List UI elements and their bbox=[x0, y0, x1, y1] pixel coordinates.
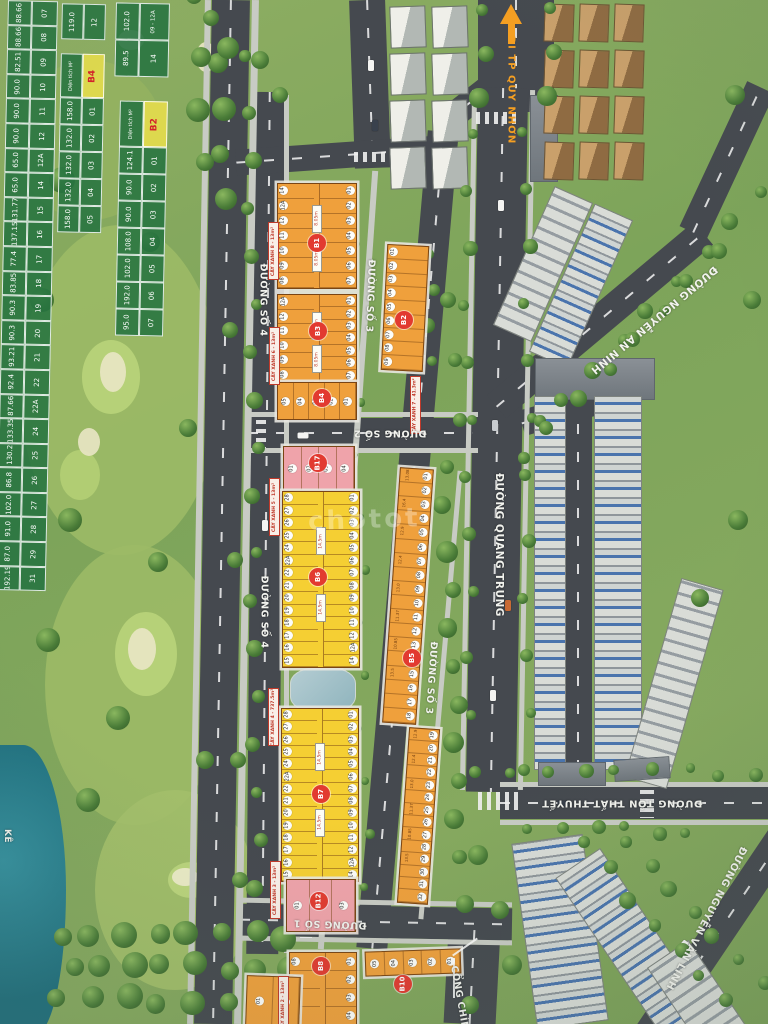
lot-number: 13 bbox=[412, 642, 417, 649]
lot-number: 08 bbox=[350, 797, 355, 803]
lot-cell: 05 bbox=[366, 952, 386, 976]
lot-cell: 05 bbox=[323, 758, 358, 770]
block-badge-label: B3 bbox=[314, 326, 322, 336]
lot-number-chip: 12A bbox=[279, 297, 288, 306]
lot-number-chip: 03 bbox=[408, 958, 417, 967]
tree bbox=[505, 768, 515, 778]
lot-number-chip: 18 bbox=[405, 711, 415, 721]
lot-number: 26 bbox=[424, 819, 429, 826]
lot-number-chip: 11 bbox=[349, 618, 358, 627]
alley-dimension: 8.05m bbox=[315, 212, 320, 226]
legend-cell-text: 11 bbox=[39, 107, 46, 116]
legend-row: 102.005 bbox=[116, 254, 165, 282]
lot-cell: 12A bbox=[323, 856, 358, 868]
tree bbox=[755, 186, 768, 199]
legend-cell: 86.8 bbox=[0, 467, 22, 492]
legend-row: 133.3524 bbox=[0, 418, 49, 444]
tree bbox=[357, 398, 366, 407]
lot-number: 11 bbox=[281, 232, 286, 238]
legend-cell: 130.2 bbox=[0, 443, 23, 468]
lot-dimension: 13.0 bbox=[409, 779, 415, 788]
legend-cell-text: 77.4 bbox=[11, 251, 18, 267]
lot-number-chip: 06 bbox=[346, 358, 355, 367]
lot-number-chip: 01 bbox=[343, 397, 352, 406]
lot-number-chip: 31 bbox=[418, 879, 428, 889]
lot-number-chip: 10 bbox=[349, 606, 358, 615]
car bbox=[372, 120, 378, 131]
lot-number: 16 bbox=[286, 645, 291, 651]
legend-cell: 22 bbox=[24, 369, 51, 394]
legend-cell: 119.0 bbox=[61, 3, 84, 39]
detached-house bbox=[389, 52, 426, 95]
lot-number: 11 bbox=[350, 834, 355, 840]
legend-cell: 91.0 bbox=[0, 517, 21, 542]
lot-number: 09 bbox=[351, 595, 356, 601]
legend-table-mini-1: 119.012 bbox=[61, 3, 106, 40]
legend-table-b4: Diện tích M²B4158.001132.002132.003132.0… bbox=[57, 53, 105, 233]
lot-number: 02 bbox=[390, 262, 395, 269]
lot-number: 04 bbox=[298, 398, 303, 404]
lot-cell: 16 bbox=[283, 642, 318, 655]
legend-cell: 90.0 bbox=[5, 123, 30, 148]
rowhouse-strip bbox=[534, 396, 566, 770]
legend-row: 90.320 bbox=[1, 320, 52, 346]
lot-number-chip: 05 bbox=[281, 397, 290, 406]
tree bbox=[88, 955, 110, 977]
legend-cell: B4 bbox=[82, 54, 105, 98]
legend-cell: 83.85 bbox=[2, 271, 27, 296]
legend-cell-text: 102.0 bbox=[124, 11, 131, 31]
lot-cell: 12 bbox=[324, 630, 359, 643]
tree bbox=[77, 925, 99, 947]
green-space-label: CÂY XANH 7 - 41.3m² bbox=[413, 378, 418, 432]
tree bbox=[522, 824, 532, 834]
lot-number: 05 bbox=[350, 761, 355, 767]
legend-cell: 06 bbox=[140, 282, 165, 309]
lot-number: 12A bbox=[351, 643, 356, 653]
tree bbox=[212, 97, 236, 121]
lot-number-chip: 04 bbox=[296, 397, 305, 406]
legend-cell-text: 31 bbox=[29, 574, 36, 583]
detached-house bbox=[613, 95, 644, 134]
rowhouse-strip bbox=[594, 396, 642, 770]
tree bbox=[47, 989, 65, 1007]
legend-cell: 22A bbox=[23, 394, 50, 419]
lot-number-chip: 15 bbox=[283, 870, 292, 879]
lot-number-chip: 20 bbox=[284, 593, 293, 602]
lot-number: 20 bbox=[285, 810, 290, 816]
legend-cell-text: 90.0 bbox=[14, 103, 21, 119]
lot-number-chip: 03 bbox=[346, 993, 355, 1002]
legend-cell: 87.66 bbox=[0, 394, 24, 419]
tree bbox=[148, 552, 168, 572]
lot-number: 03 bbox=[389, 276, 394, 283]
lot-number: 12 bbox=[281, 313, 286, 319]
lot-number: 19 bbox=[430, 732, 435, 739]
legend-cell: 01 bbox=[142, 147, 167, 174]
alley-dimension: 14.5m bbox=[318, 750, 323, 764]
lot-number-chip: 01 bbox=[422, 472, 432, 482]
legend-cell: 21 bbox=[24, 345, 51, 370]
car bbox=[298, 433, 309, 439]
lot-number-chip: 14 bbox=[348, 870, 357, 879]
lot-number-chip: 02 bbox=[388, 261, 397, 270]
detached-house bbox=[578, 3, 609, 42]
lot-cell: 24 bbox=[282, 758, 317, 770]
lot-number-chip: 18 bbox=[284, 618, 293, 627]
lot-number: 22A bbox=[286, 555, 291, 565]
detached-house bbox=[578, 95, 609, 134]
lot-cell: 09 bbox=[278, 258, 314, 273]
detached-house bbox=[389, 5, 426, 48]
block-badge-b5: B5 bbox=[403, 649, 421, 667]
block-badge-b2: B2 bbox=[395, 311, 413, 329]
lot-cell: 01 bbox=[320, 184, 356, 199]
lot-number-chip: 20 bbox=[427, 743, 437, 753]
legend-cell: 88.66 bbox=[7, 0, 32, 25]
lot-number-chip: 06 bbox=[346, 261, 355, 270]
tree bbox=[518, 298, 529, 309]
lot-number-chip: 11 bbox=[412, 613, 422, 623]
lot-number-chip: 26 bbox=[422, 817, 432, 827]
detached-house bbox=[431, 52, 468, 95]
legend-cell: 124.1 bbox=[118, 147, 143, 174]
legend-row: 90.010 bbox=[6, 74, 57, 100]
detached-house bbox=[578, 141, 609, 180]
tree bbox=[463, 241, 477, 255]
lot-number-chip: 01 bbox=[389, 247, 398, 256]
lot-cell: 22A bbox=[282, 770, 317, 782]
legend-cell-text: 83.85 bbox=[10, 273, 17, 293]
tree bbox=[758, 976, 768, 990]
lot-number-chip: 07 bbox=[346, 276, 355, 285]
lot-number: 24 bbox=[285, 761, 290, 767]
legend-cell-text: 12 bbox=[39, 132, 46, 141]
lot-number-chip: 05 bbox=[349, 543, 358, 552]
lot-number: 06 bbox=[419, 544, 424, 551]
legend-row: 90.002 bbox=[118, 174, 167, 202]
lot-number-chip: 26 bbox=[283, 735, 292, 744]
legend-cell: 158.0 bbox=[57, 205, 80, 232]
legend-cell-text: 12 bbox=[91, 17, 98, 26]
lot-number: 16 bbox=[409, 684, 414, 691]
lot-number: 04 bbox=[421, 515, 426, 522]
lot-number: 10 bbox=[281, 342, 286, 348]
legend-row: 95.007 bbox=[115, 308, 164, 336]
lot-number: 02 bbox=[348, 976, 353, 982]
legend-cell-text: 137.15 bbox=[11, 222, 19, 247]
tree bbox=[502, 955, 522, 975]
lot-dimension: 13.5 bbox=[404, 854, 410, 863]
lot-number-chip: 05 bbox=[346, 346, 355, 355]
legend-cell: 14 bbox=[138, 40, 169, 78]
lot-cell: 24 bbox=[283, 542, 318, 555]
tree bbox=[557, 822, 569, 834]
lot-number-chip: 07 bbox=[384, 330, 393, 339]
lot-number: 01 bbox=[391, 248, 396, 255]
lot-number: 08 bbox=[281, 277, 286, 283]
lot-number-chip: 02 bbox=[346, 309, 355, 318]
lot-number: 30 bbox=[421, 868, 426, 875]
legend-cell-text: 87.0 bbox=[5, 546, 12, 562]
tree bbox=[217, 37, 239, 59]
lot-column: 01020304050607 bbox=[319, 295, 356, 382]
tree bbox=[66, 958, 84, 976]
legend-cell: 29 bbox=[20, 542, 47, 567]
block-badge-b17: B17 bbox=[309, 454, 327, 472]
lot-number: 25 bbox=[285, 748, 290, 754]
lot-number: 01 bbox=[350, 711, 355, 717]
legend-row: 90.003 bbox=[117, 201, 166, 229]
legend-cell: 05 bbox=[140, 255, 165, 282]
tree bbox=[440, 460, 454, 474]
sidewalk bbox=[500, 820, 768, 825]
lot-number-chip: 16 bbox=[283, 858, 292, 867]
legend-cell: 09 bbox=[30, 50, 57, 75]
tree bbox=[456, 895, 474, 913]
detached-house bbox=[613, 141, 644, 180]
lot-number-chip: 09 bbox=[383, 357, 392, 366]
alley-dimension: 14.5m bbox=[318, 816, 323, 830]
legend-row: 124.101 bbox=[118, 147, 167, 175]
lot-number: 27 bbox=[286, 507, 291, 513]
legend-cell: 65.0 bbox=[4, 148, 29, 173]
lot-number: 04 bbox=[348, 335, 353, 341]
lot-number-chip: 04 bbox=[346, 1011, 355, 1020]
lot-cell: 15 bbox=[283, 655, 318, 668]
lot-number-chip: 10 bbox=[348, 821, 357, 830]
tree bbox=[468, 129, 478, 139]
lot-number-chip: 08 bbox=[291, 957, 300, 966]
legend-row: 89.514 bbox=[114, 39, 169, 77]
alley-dimension: 8.05m bbox=[315, 352, 320, 366]
lot-block-b2: 010203040506070809 bbox=[381, 244, 430, 372]
legend-cell: 19 bbox=[25, 296, 52, 321]
site-masterplan-photo: ĐI TP QUY NHƠN chotot 1412A1211100908010… bbox=[0, 0, 768, 1024]
tree bbox=[183, 951, 207, 975]
tree bbox=[76, 788, 100, 812]
legend-cell-text: 133.35 bbox=[7, 418, 15, 443]
alley-dimension-strip: 14.5m bbox=[316, 594, 326, 622]
tree bbox=[58, 508, 82, 532]
tree bbox=[446, 659, 460, 673]
lot-cell: 19 bbox=[283, 605, 318, 618]
tree bbox=[173, 921, 197, 945]
legend-cell-text: 88.66 bbox=[16, 3, 23, 23]
lot-cell: 04 bbox=[337, 447, 355, 490]
lot-cell: 02 bbox=[326, 971, 356, 989]
lot-number: 03 bbox=[348, 322, 353, 328]
lot-dimension: 13.08 bbox=[404, 469, 410, 481]
lot-cell: 10 bbox=[323, 820, 358, 832]
lot-number: 26 bbox=[285, 736, 290, 742]
tree bbox=[244, 488, 259, 503]
green-space-strip: CÂY XANH 3 - 13m² bbox=[270, 861, 281, 919]
lot-cell: 26 bbox=[282, 734, 317, 746]
tree bbox=[570, 390, 587, 407]
golf-bunker bbox=[128, 628, 156, 670]
lot-number: 05 bbox=[348, 247, 353, 253]
lot-number-chip: 25 bbox=[423, 805, 433, 815]
lot-number: 11 bbox=[414, 614, 419, 621]
lot-number: 24 bbox=[286, 545, 291, 551]
legend-cell: 26 bbox=[22, 468, 49, 493]
legend-cell: 133.35 bbox=[0, 418, 23, 443]
detached-house bbox=[578, 49, 609, 88]
lot-number-chip: 12 bbox=[348, 845, 357, 854]
legend-cell-text: 06 bbox=[148, 291, 155, 300]
legend-cell-text: 12A bbox=[38, 154, 45, 168]
lot-number: 01 bbox=[447, 958, 452, 965]
lot-cell: 05 bbox=[324, 542, 359, 555]
tree bbox=[428, 284, 440, 296]
tree bbox=[733, 954, 744, 965]
lot-number: 04 bbox=[350, 748, 355, 754]
lot-cell: 18 bbox=[282, 832, 317, 844]
tree bbox=[149, 954, 169, 974]
lot-cell: 01 bbox=[326, 953, 356, 971]
lot-number: 05 bbox=[372, 961, 377, 968]
tree bbox=[579, 764, 593, 778]
tree bbox=[578, 836, 589, 847]
legend-cell: 89.5 bbox=[114, 39, 139, 76]
legend-cell-text: 108.0 bbox=[125, 231, 132, 251]
lot-cell: 14 bbox=[324, 655, 359, 668]
legend-cell-text: 132.0 bbox=[65, 182, 72, 202]
legend-table-b2: Diện tích M²B2124.10190.00290.003108.004… bbox=[115, 101, 168, 337]
lot-number: 10 bbox=[281, 247, 286, 253]
tree bbox=[106, 706, 130, 730]
tree bbox=[232, 872, 248, 888]
lot-number-chip: 09 bbox=[279, 355, 288, 364]
lot-cell: 20 bbox=[283, 592, 318, 605]
lot-number-chip: 01 bbox=[346, 186, 355, 195]
legend-cell-text: 16 bbox=[36, 230, 43, 239]
lot-cell: 05 bbox=[278, 383, 294, 419]
tree bbox=[448, 353, 462, 367]
crosswalk bbox=[354, 152, 388, 162]
road-label: ĐƯỜNG SỐ 3 bbox=[363, 259, 377, 332]
lot-number-chip: 22 bbox=[284, 568, 293, 577]
legend-cell: 28 bbox=[21, 517, 48, 542]
lot-number-chip: 04 bbox=[387, 288, 396, 297]
lot-number: 24 bbox=[426, 794, 431, 801]
tree bbox=[239, 50, 250, 61]
tree bbox=[179, 419, 197, 437]
tree bbox=[517, 593, 528, 604]
lot-cell: 04 bbox=[323, 746, 358, 758]
block-badge-label: B2 bbox=[400, 315, 408, 325]
lot-cell: 02 bbox=[320, 307, 356, 319]
lot-number: 05 bbox=[283, 398, 288, 404]
green-space-strip: CÂY XANH 6 - 13m² bbox=[269, 327, 280, 385]
lot-number: 12 bbox=[281, 217, 286, 223]
legend-row: 158.005 bbox=[57, 205, 102, 233]
lot-number: 21 bbox=[286, 582, 291, 588]
lot-cell: 09 bbox=[324, 592, 359, 605]
tree bbox=[213, 923, 231, 941]
legend-cell: 82.51 bbox=[6, 49, 31, 74]
lot-cell: 19 bbox=[282, 820, 317, 832]
lot-number-chip: 03 bbox=[348, 735, 357, 744]
tree bbox=[458, 300, 469, 311]
tree bbox=[243, 345, 257, 359]
legend-cell-text: 01 bbox=[151, 156, 158, 165]
legend-row: 65.012A bbox=[4, 148, 55, 174]
alley-dimension-strip: 14.5m bbox=[315, 809, 325, 837]
lot-number: 19 bbox=[285, 822, 290, 828]
lot-number: 08 bbox=[386, 345, 391, 352]
lot-number-chip: 10 bbox=[413, 598, 423, 608]
lot-number-chip: 22A bbox=[283, 772, 292, 781]
lot-number: 12A bbox=[350, 857, 355, 867]
lot-number-chip: 01 bbox=[349, 493, 358, 502]
lot-number: 11 bbox=[281, 328, 286, 334]
lot-number-chip: 22A bbox=[284, 556, 293, 565]
legend-cell: 102.0 bbox=[115, 2, 140, 39]
car bbox=[262, 520, 268, 531]
water-canal bbox=[0, 745, 66, 1024]
lot-number: 12 bbox=[413, 628, 418, 635]
tree bbox=[122, 952, 148, 978]
legend-cell: 24 bbox=[23, 419, 50, 444]
lot-number: 09 bbox=[350, 810, 355, 816]
block-badge-label: B12 bbox=[315, 893, 323, 908]
tree bbox=[711, 243, 728, 260]
detached-house bbox=[431, 146, 468, 189]
lot-cell: 10 bbox=[324, 605, 359, 618]
lot-cell: 07 bbox=[320, 370, 356, 382]
legend-cell: 07 bbox=[139, 309, 164, 336]
legend-cell: 192.0 bbox=[116, 281, 141, 308]
detached-house bbox=[431, 99, 468, 142]
tree bbox=[222, 322, 238, 338]
legend-cell-text: 04 bbox=[87, 188, 94, 197]
lot-cell: 01 bbox=[323, 709, 358, 721]
car bbox=[498, 200, 504, 211]
legend-cell-text: 92.4 bbox=[8, 374, 15, 390]
lot-number-chip: 06 bbox=[385, 316, 394, 325]
legend-cell: 01 bbox=[81, 98, 104, 125]
legend-row: 158.001 bbox=[59, 97, 104, 125]
detached-house bbox=[389, 146, 426, 189]
legend-cell-text: B4 bbox=[89, 69, 98, 82]
crosswalk bbox=[478, 792, 522, 810]
lot-number-chip: 22 bbox=[283, 784, 292, 793]
legend-cell: 132.0 bbox=[59, 124, 82, 151]
lot-number: 21 bbox=[285, 797, 290, 803]
lot-number: 06 bbox=[350, 773, 355, 779]
legend-cell-text: 15 bbox=[37, 205, 44, 214]
block-badge-label: B5 bbox=[408, 653, 416, 663]
lot-cell: 11 bbox=[324, 617, 359, 630]
legend-cell: 131.77 bbox=[3, 197, 28, 222]
lot-number: 05 bbox=[388, 303, 393, 310]
lot-number: 07 bbox=[348, 277, 353, 283]
lot-number-chip: 14 bbox=[349, 656, 358, 665]
lot-number: 04 bbox=[389, 290, 394, 297]
tree bbox=[361, 777, 369, 785]
lot-number-chip: 07 bbox=[416, 556, 426, 566]
lot-cell: 06 bbox=[323, 770, 358, 782]
legend-cell: 132.0 bbox=[58, 178, 81, 205]
lot-number: 27 bbox=[285, 724, 290, 730]
lot-dimension: 11.37 bbox=[394, 610, 400, 622]
lot-number: 01 bbox=[424, 473, 429, 480]
legend-cell: 12 bbox=[29, 124, 56, 149]
lot-number: 16 bbox=[285, 859, 290, 865]
lot-number: 15 bbox=[410, 670, 415, 677]
